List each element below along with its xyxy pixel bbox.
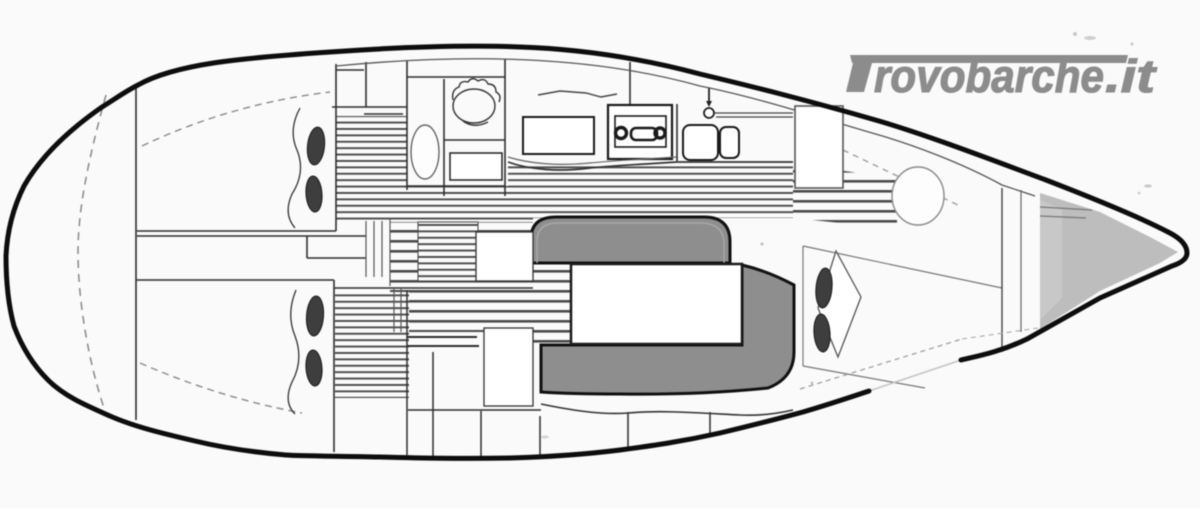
svg-text:rovobarche: rovobarche	[874, 50, 1104, 102]
svg-text:.it: .it	[1105, 50, 1157, 102]
